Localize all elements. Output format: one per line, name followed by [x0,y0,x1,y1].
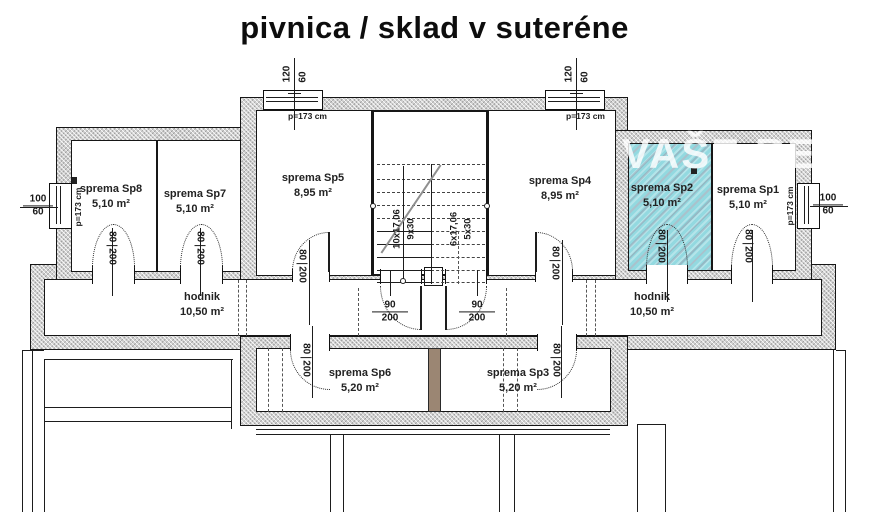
terrace-line [499,434,500,512]
projection-line [282,348,283,412]
door-dim-sp2: 80200 [656,229,667,263]
room-label-sp1: sprema Sp15,10 m² [717,183,779,213]
projection-line [586,280,587,336]
stair-door-dim-left: 90200 [372,299,408,324]
room-label-sp5: sprema Sp58,95 m² [282,171,344,201]
door-leaf-sp5 [328,232,330,272]
terrace-line [44,359,233,360]
floor-plan: pivnica / sklad v suteréne [0,0,869,512]
side-window-dim-left: 10060 [23,193,53,218]
terrace-line [665,424,666,512]
parapet-label: p=173 cm [785,187,795,226]
terrace-line [330,434,331,512]
door-dim-sp6: 80200 [301,343,312,377]
dim-leader [390,270,391,296]
dim-leader [309,240,310,325]
stair-walk-line [403,166,404,280]
window-dim-width: 120 [564,66,575,83]
wall-marker [484,203,490,209]
wall-marker [370,203,376,209]
door-dim-sp8: 80200 [107,231,118,265]
corridor-hodnik [44,279,822,336]
dim-leader [477,270,478,296]
stair-riser-label-main: 10x17,06 [392,209,403,249]
stair-tread [377,231,431,232]
terrace-line [343,434,344,512]
dim-tick [570,93,583,94]
door-dim-sp5: 80200 [297,249,308,283]
room-label-sp6: sprema Sp65,20 m² [329,366,391,396]
dim-leader [312,326,313,398]
dim-tick [288,93,301,94]
projection-line [358,288,359,336]
room-label-sp3: sprema Sp35,20 m² [487,366,549,396]
room-label-sp7: sprema Sp75,10 m² [164,187,226,217]
stair-tread-label-sec: 5x30 [463,218,474,239]
terrace-line [637,424,665,425]
projection-line [506,288,507,336]
parapet-label: p=173 cm [566,111,605,121]
terrace-line [44,421,231,422]
terrace-line [845,350,846,512]
projection-line [246,280,247,336]
window-dim-height: 60 [580,71,591,82]
projection-line [268,348,269,412]
dim-leader [562,240,563,325]
door-dim-sp1: 80200 [743,229,754,263]
projection-line [595,280,596,336]
room-label-sp4: sprema Sp48,95 m² [529,174,591,204]
window-dim-height: 60 [298,71,309,82]
room-label-sp8: sprema Sp85,10 m² [80,182,142,212]
terrace-line [256,434,610,435]
window-dim-width: 120 [282,66,293,83]
dividing-wall-brown [428,348,441,412]
parapet-label: p=173 cm [73,188,83,227]
door-leaf-stair-left [420,286,422,330]
side-window-dim-right: 10060 [813,192,843,217]
page-title: pivnica / sklad v suteréne [0,10,869,46]
terrace-line [833,350,834,512]
terrace-line [44,407,231,408]
terrace-line [22,350,23,512]
stair-tread [377,257,431,258]
wall-marker [72,177,77,184]
room-label-sp2: sprema Sp25,10 m² [631,181,693,211]
terrace-line [44,359,45,512]
watermark: VAŠE REALIT [622,130,869,178]
terrace-line [256,429,610,430]
parapet-label: p=173 cm [288,111,327,121]
terrace-line [637,424,638,512]
stair-walkline-start [400,278,406,284]
door-dim-sp3: 80200 [551,343,562,377]
room-label-hodnik-right: hodnik10,50 m² [630,290,674,320]
terrace-line [231,359,232,429]
door-dim-sp4: 80200 [550,246,561,280]
stair-tread [377,270,431,271]
terrace-line [514,434,515,512]
stair-door-dim-right: 90200 [459,299,495,324]
stair-riser-label-sec: 6x17,06 [449,212,460,246]
stair-flight-divider [431,164,432,284]
door-dim-sp7: 80200 [195,231,206,265]
stairwell [372,110,488,276]
terrace-line [32,350,33,512]
stair-tread-label-main: 9x30 [406,218,417,239]
room-label-hodnik-left: hodnik10,50 m² [180,290,224,320]
door-leaf-stair-right [445,286,447,330]
projection-line [238,280,239,336]
terrace-line [22,350,44,351]
door-leaf-sp4 [535,232,537,272]
